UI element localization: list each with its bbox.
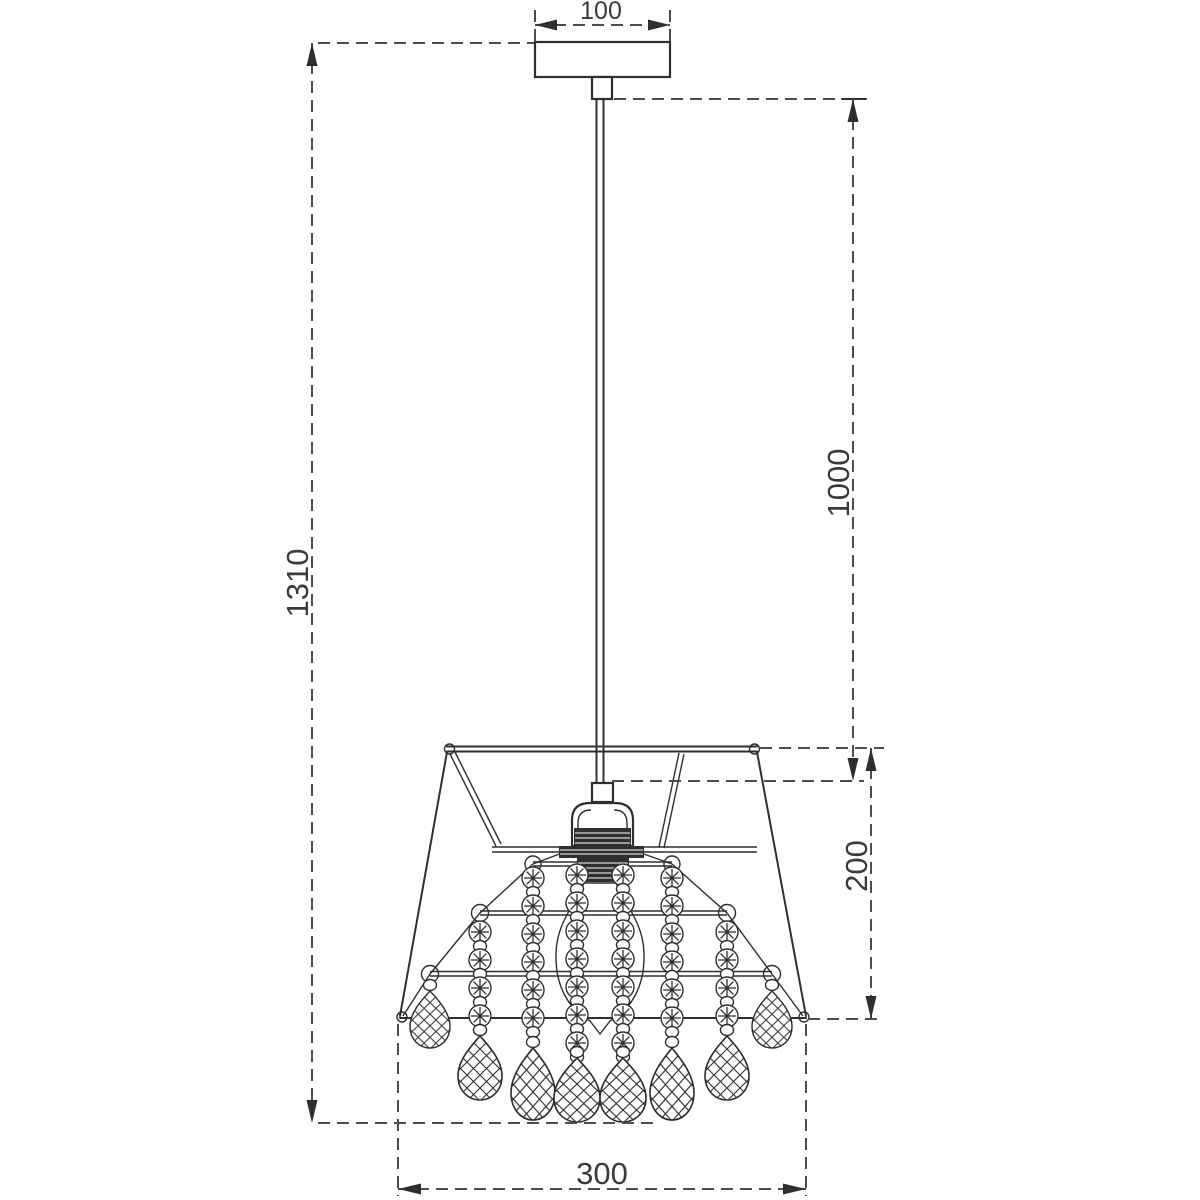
teardrop-crystal xyxy=(705,1036,749,1100)
crystal-bead xyxy=(661,923,683,945)
technical-drawing-page: 100 1310 1000 200 300 xyxy=(0,0,1200,1200)
dimension-label-cord-length: 1000 xyxy=(821,449,856,518)
bead-link xyxy=(721,1025,734,1036)
bead-link xyxy=(617,1047,630,1058)
crystal-bead xyxy=(522,895,544,917)
canopy-connector xyxy=(592,77,612,99)
pendant-lamp-technical-drawing: 100 1310 1000 200 300 xyxy=(0,0,1200,1200)
canopy-plate xyxy=(535,42,670,77)
crystal-bead xyxy=(716,977,738,999)
socket-cap xyxy=(592,783,613,802)
teardrop-crystal xyxy=(752,991,792,1048)
bead-link xyxy=(527,1037,540,1048)
dimension-overall-height: 1310 xyxy=(280,43,655,1123)
teardrop-crystal xyxy=(600,1058,646,1122)
crystal-bead xyxy=(566,920,588,942)
crystal-bead xyxy=(522,923,544,945)
dimension-label-shade-width: 300 xyxy=(576,1156,628,1191)
teardrop-crystal xyxy=(410,991,450,1048)
bead-link xyxy=(666,1037,679,1048)
crystal-bead xyxy=(661,1007,683,1029)
crystal-bead xyxy=(566,1004,588,1026)
teardrop-crystal xyxy=(650,1048,694,1120)
bead-link xyxy=(766,980,779,991)
crystal-bead xyxy=(522,979,544,1001)
bead-link xyxy=(571,1047,584,1058)
crystal-bead xyxy=(522,867,544,889)
dimension-canopy-width: 100 xyxy=(535,0,670,42)
crystal-bead xyxy=(612,976,634,998)
dimension-cord-length: 1000 xyxy=(612,99,866,781)
crystal-bead xyxy=(469,949,491,971)
crystal-bead xyxy=(716,921,738,943)
crystal-bead xyxy=(522,951,544,973)
crystal-bead xyxy=(661,895,683,917)
teardrop-crystal xyxy=(458,1036,502,1100)
dimension-label-overall-height: 1310 xyxy=(280,549,315,618)
crystal-bead xyxy=(469,1005,491,1027)
teardrop-crystal xyxy=(511,1048,555,1120)
dimension-label-shade-height: 200 xyxy=(839,840,874,892)
crystal-bead xyxy=(612,920,634,942)
crystal-bead xyxy=(469,977,491,999)
crystal-bead xyxy=(469,921,491,943)
socket-flange xyxy=(559,846,644,858)
crystal-bead xyxy=(566,892,588,914)
crystal-bead xyxy=(522,1007,544,1029)
crystal-bead xyxy=(716,949,738,971)
bead-link xyxy=(424,980,437,991)
crystal-bead xyxy=(716,1005,738,1027)
crystal-bead xyxy=(661,951,683,973)
crystal-bead xyxy=(612,864,634,886)
crystal-bead xyxy=(612,1004,634,1026)
crystal-bead xyxy=(612,892,634,914)
crystal-bead xyxy=(612,948,634,970)
crystal-bead xyxy=(661,979,683,1001)
suspension-rod xyxy=(597,99,604,783)
dimension-label-canopy-width: 100 xyxy=(580,0,622,25)
crystal-bead xyxy=(566,864,588,886)
crystal-bead xyxy=(661,867,683,889)
crystal-strands xyxy=(410,864,792,1122)
teardrop-crystal xyxy=(554,1058,600,1122)
bead-link xyxy=(474,1025,487,1036)
crystal-bead xyxy=(566,948,588,970)
ceiling-canopy xyxy=(535,42,670,99)
crystal-bead xyxy=(566,976,588,998)
